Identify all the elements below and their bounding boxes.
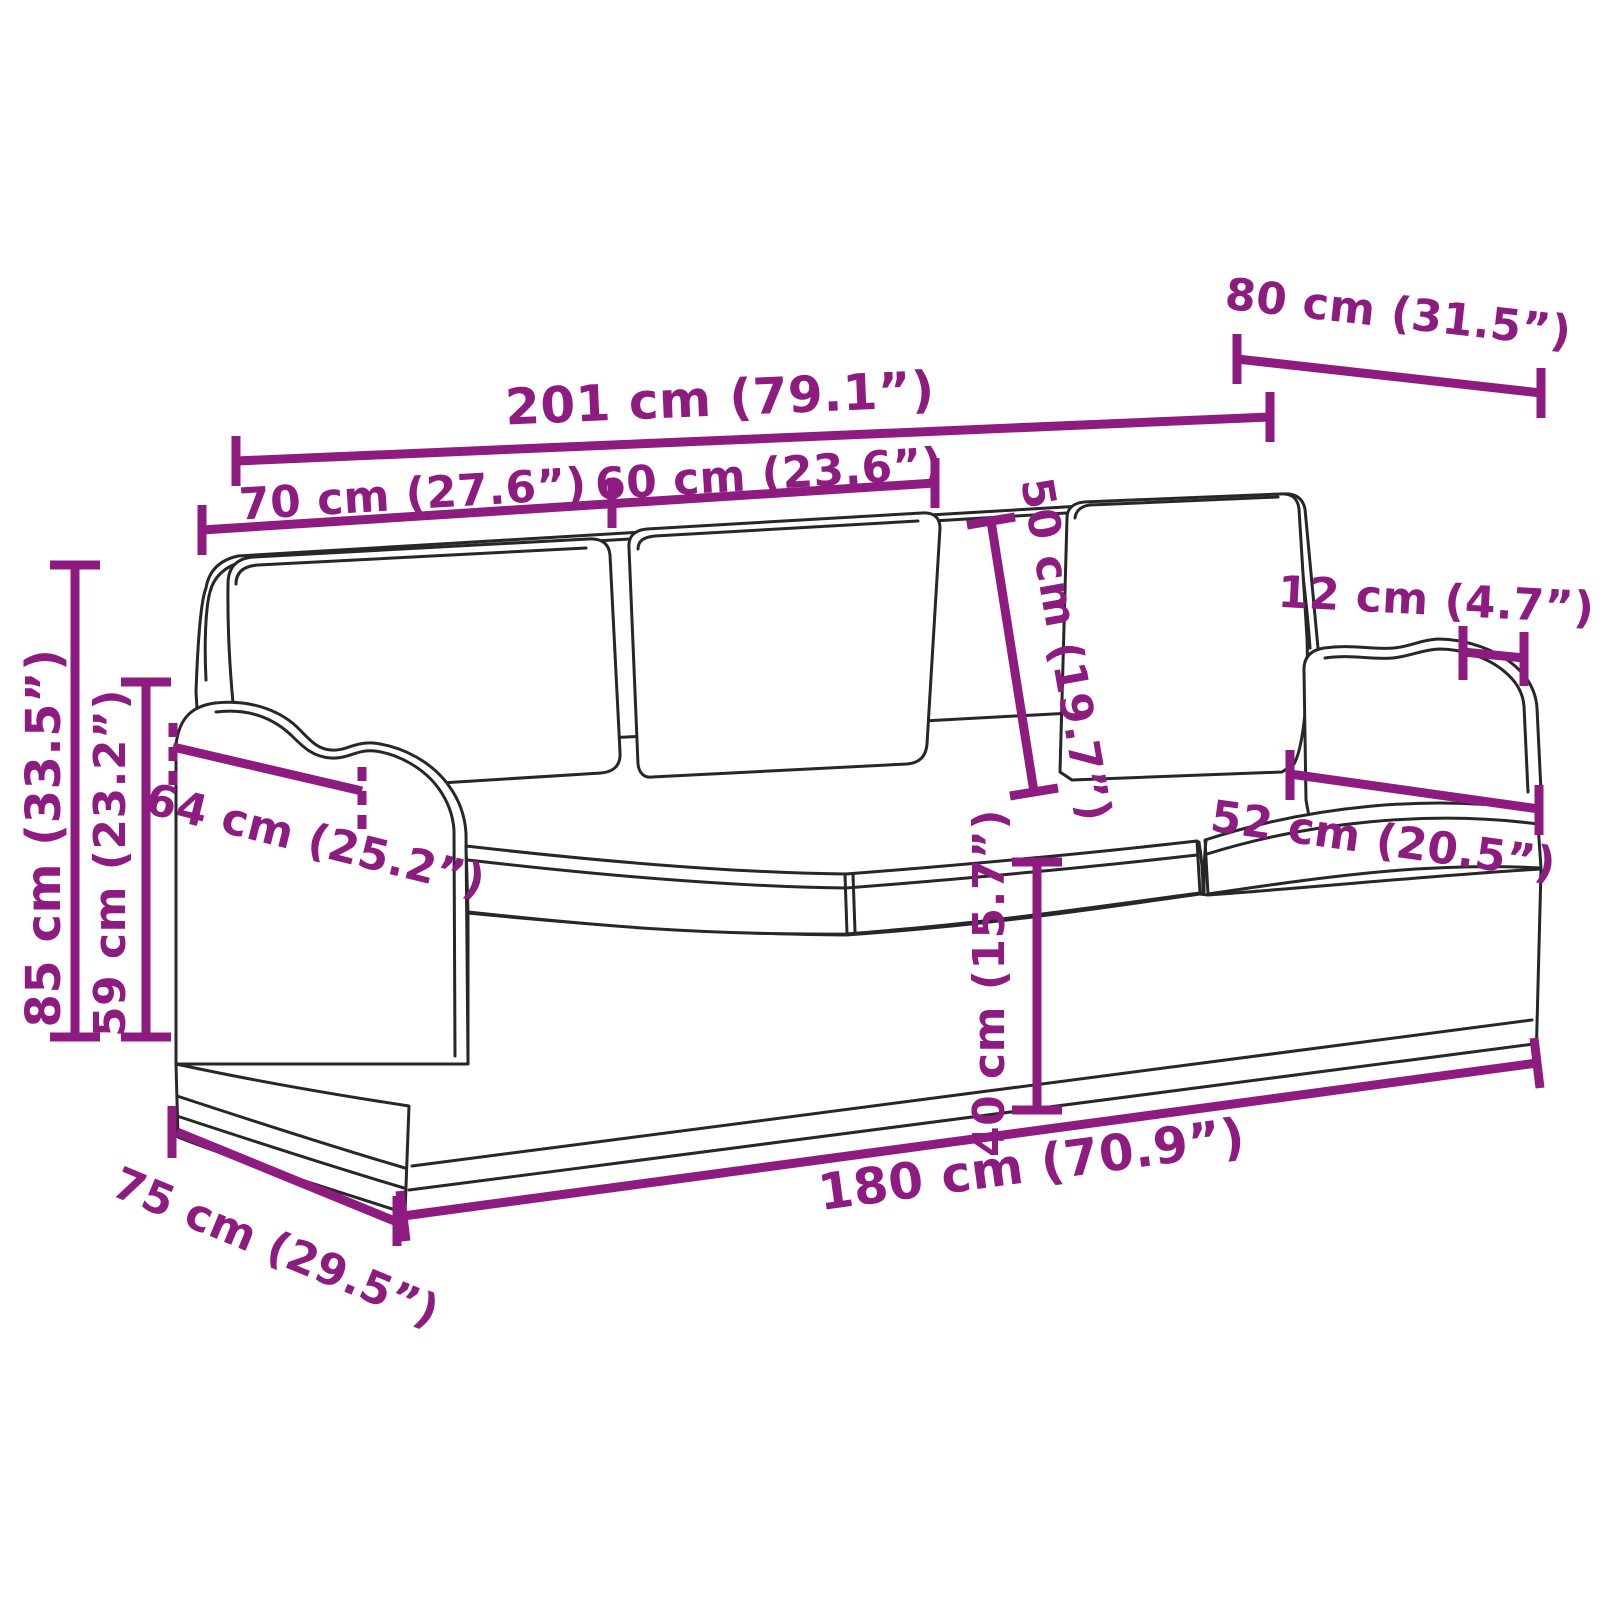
- dim-overall-depth-line: [1237, 359, 1541, 393]
- back-cushion-middle: [629, 513, 940, 777]
- dim-overall-depth: 80 cm (31.5”): [1223, 269, 1575, 418]
- dim-overall-depth-label: 80 cm (31.5”): [1223, 269, 1575, 358]
- sofa-dimension-diagram: 201 cm (79.1”) 70 cm (27.6”) 60 cm (23.6…: [0, 0, 1600, 1600]
- dim-seat-middle-label: 60 cm (23.6”): [594, 438, 944, 510]
- dim-armrest-width-label: 12 cm (4.7”): [1277, 567, 1596, 635]
- dim-seat-height-label: 40 cm (15.7”): [964, 809, 1015, 1157]
- dim-seat-left-label: 70 cm (27.6”): [238, 458, 588, 530]
- dimension-diagram-canvas: 201 cm (79.1”) 70 cm (27.6”) 60 cm (23.6…: [0, 0, 1600, 1600]
- dim-overall-height-label: 85 cm (33.5”): [16, 648, 72, 1027]
- dim-overall-width-label: 201 cm (79.1”): [504, 361, 936, 437]
- dim-armrest-height-label: 59 cm (23.2”): [85, 689, 136, 1037]
- dim-armrest-width-line: [1463, 652, 1524, 658]
- dim-armrest-height: 59 cm (23.2”): [85, 682, 171, 1037]
